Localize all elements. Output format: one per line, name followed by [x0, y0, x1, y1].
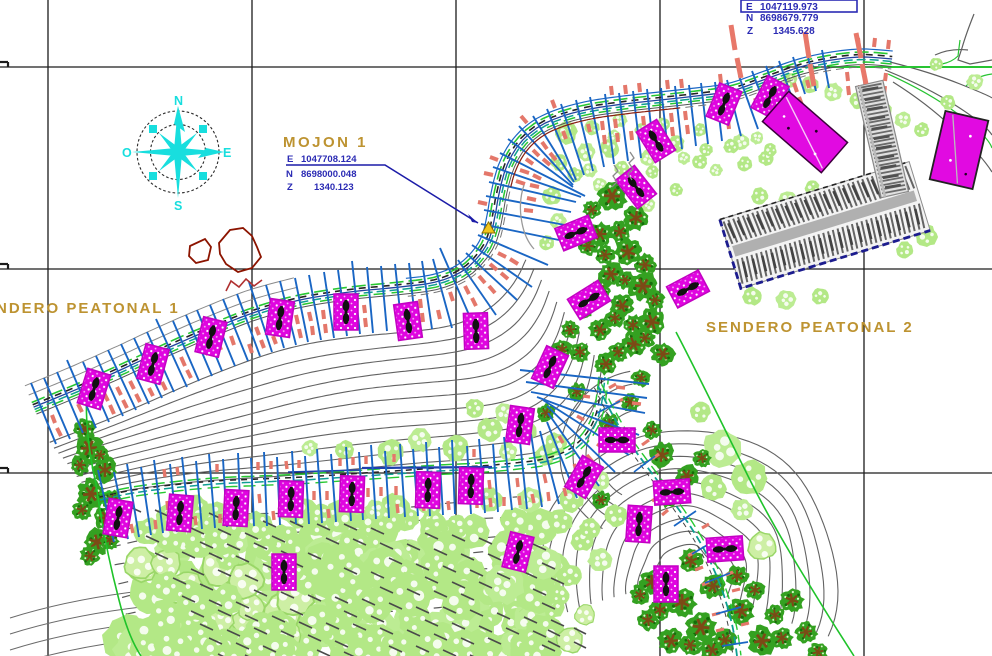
svg-text:N: N [746, 13, 753, 24]
svg-text:E: E [223, 146, 231, 160]
svg-text:O: O [122, 146, 132, 160]
svg-text:8698679.779: 8698679.779 [760, 13, 819, 24]
svg-text:Z: Z [287, 182, 293, 193]
svg-text:E: E [746, 2, 753, 13]
svg-text:SENDERO PEATONAL 2: SENDERO PEATONAL 2 [706, 319, 914, 336]
svg-text:Z: Z [747, 26, 753, 37]
svg-text:N: N [174, 94, 183, 108]
svg-text:SENDERO PEATONAL 1: SENDERO PEATONAL 1 [0, 300, 180, 317]
svg-text:E: E [287, 154, 293, 165]
svg-text:N: N [286, 169, 293, 180]
svg-text:1047708.124: 1047708.124 [301, 154, 357, 165]
svg-text:8698000.048: 8698000.048 [301, 169, 356, 180]
svg-text:1340.123: 1340.123 [314, 182, 354, 193]
svg-text:MOJON 1: MOJON 1 [283, 134, 368, 151]
svg-text:1047119.973: 1047119.973 [760, 2, 818, 13]
svg-text:S: S [174, 199, 182, 213]
svg-text:1345.628: 1345.628 [773, 26, 815, 37]
